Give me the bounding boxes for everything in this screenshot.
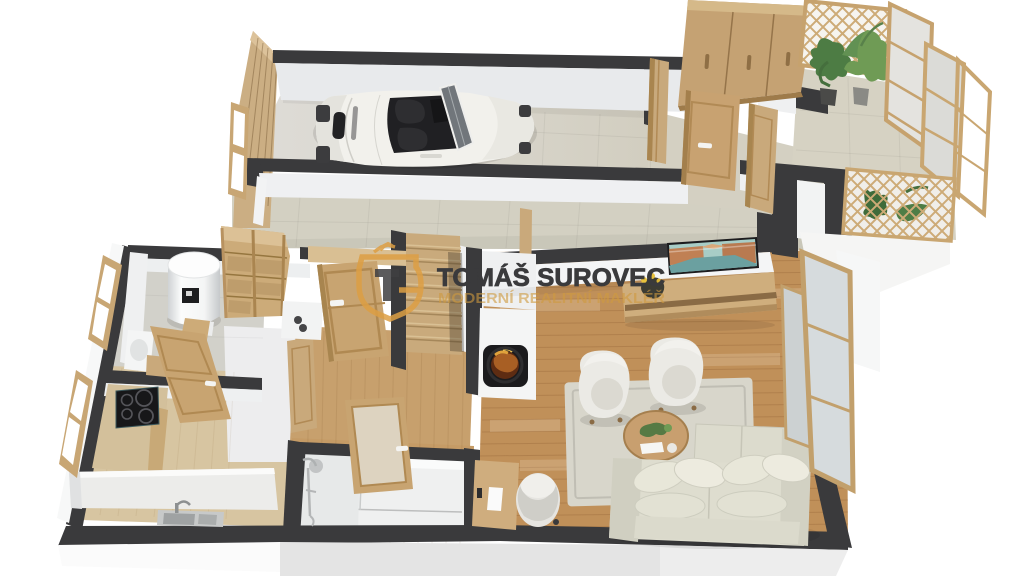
svg-text:TOMÁŠ SUROVEC: TOMÁŠ SUROVEC xyxy=(437,262,665,292)
svg-text:MODERNÍ REALITNÍ MAKLÉŘ: MODERNÍ REALITNÍ MAKLÉŘ xyxy=(438,289,666,307)
